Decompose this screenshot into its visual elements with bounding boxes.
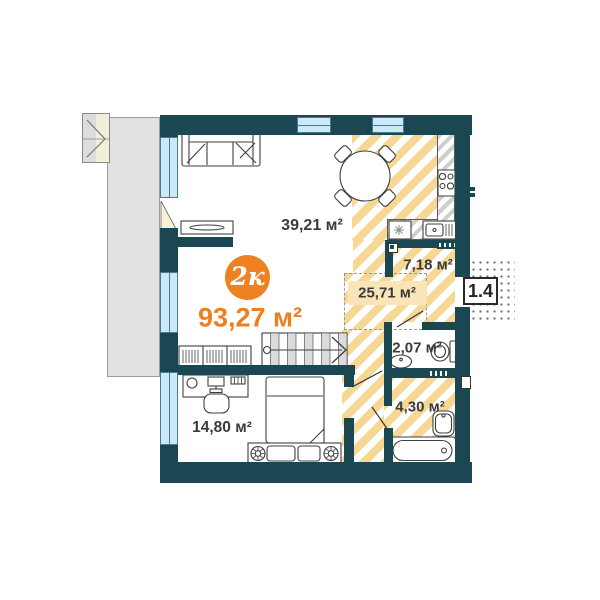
wardrobe bbox=[179, 346, 251, 367]
exterior-stair-arrow-icon bbox=[82, 120, 110, 157]
bathroom-door bbox=[372, 407, 388, 430]
bed bbox=[248, 377, 341, 464]
bathtub bbox=[389, 437, 456, 464]
wall bbox=[178, 237, 233, 247]
vent-grille-icon bbox=[428, 369, 450, 378]
bedroom-area-label: 14,80 м² bbox=[192, 419, 252, 437]
stairs bbox=[262, 333, 347, 367]
gas-pipe-mark bbox=[468, 193, 475, 197]
wall bbox=[160, 462, 472, 483]
rooms-badge: 2к bbox=[225, 255, 270, 300]
gas-pipe-mark bbox=[468, 187, 475, 191]
floor-plan: 39,21 м² 25,71 м² 7,18 м² 2,07 м² 4,30 м… bbox=[0, 0, 600, 600]
wall bbox=[344, 375, 354, 387]
window bbox=[160, 137, 178, 198]
wall bbox=[344, 418, 354, 462]
dining-table bbox=[333, 144, 396, 207]
window bbox=[160, 372, 178, 445]
kitchen-zone-area-label: 25,71 м² bbox=[358, 285, 416, 302]
total-area-label: 93,27 м² bbox=[198, 303, 302, 334]
bedroom-door bbox=[352, 371, 382, 387]
wall bbox=[160, 115, 178, 137]
window bbox=[297, 117, 331, 133]
wall bbox=[422, 322, 455, 330]
wc-door bbox=[397, 311, 423, 327]
hallway-area-label: 7,18 м² bbox=[403, 257, 452, 274]
wall bbox=[384, 378, 392, 406]
wc-sink bbox=[391, 355, 412, 368]
furniture-layer bbox=[0, 0, 600, 600]
sofa bbox=[182, 133, 260, 166]
unit-number-badge: 1.4 bbox=[463, 277, 498, 305]
window bbox=[160, 272, 178, 333]
hob-asterisk bbox=[389, 221, 411, 239]
wall-niche bbox=[461, 376, 471, 389]
office-chair bbox=[204, 394, 229, 413]
bathroom-area-label: 4,30 м² bbox=[395, 399, 444, 416]
vent-grille-icon bbox=[437, 241, 457, 249]
kitchen-sink bbox=[423, 221, 456, 239]
wall bbox=[384, 428, 393, 462]
entrance-door-hinge bbox=[388, 243, 398, 253]
living-area-label: 39,21 м² bbox=[281, 217, 343, 235]
wall bbox=[160, 228, 178, 272]
stove bbox=[438, 170, 455, 196]
wall bbox=[160, 365, 355, 375]
tv-stand bbox=[181, 221, 233, 234]
window bbox=[372, 117, 404, 133]
balcony-door bbox=[161, 201, 176, 229]
wall bbox=[384, 322, 392, 370]
wc-area-label: 2,07 м² bbox=[392, 340, 441, 357]
